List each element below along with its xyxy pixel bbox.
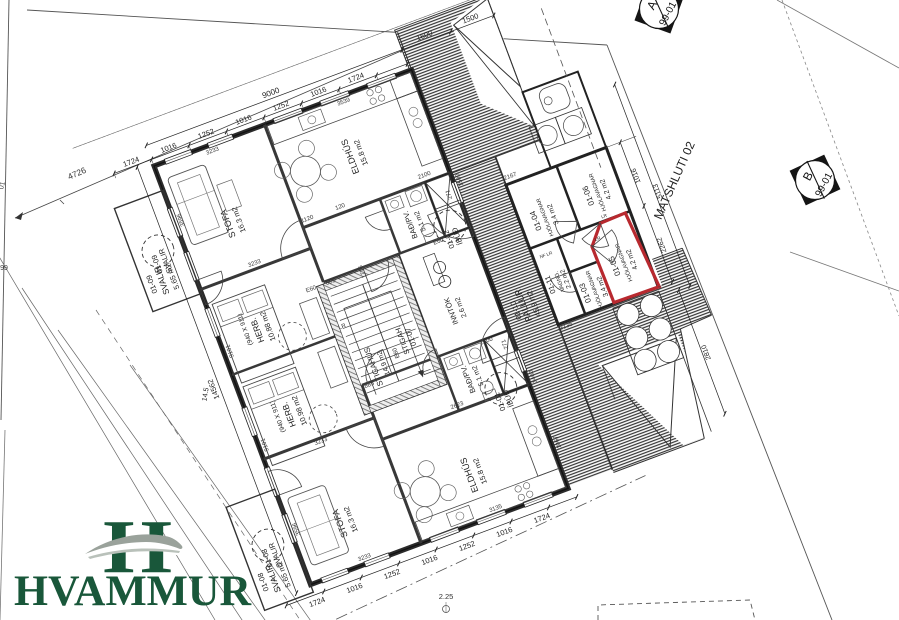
svg-text:HVAMMUR: HVAMMUR	[14, 568, 252, 615]
svg-text:2.25: 2.25	[439, 592, 454, 601]
svg-text:99: 99	[0, 265, 8, 272]
